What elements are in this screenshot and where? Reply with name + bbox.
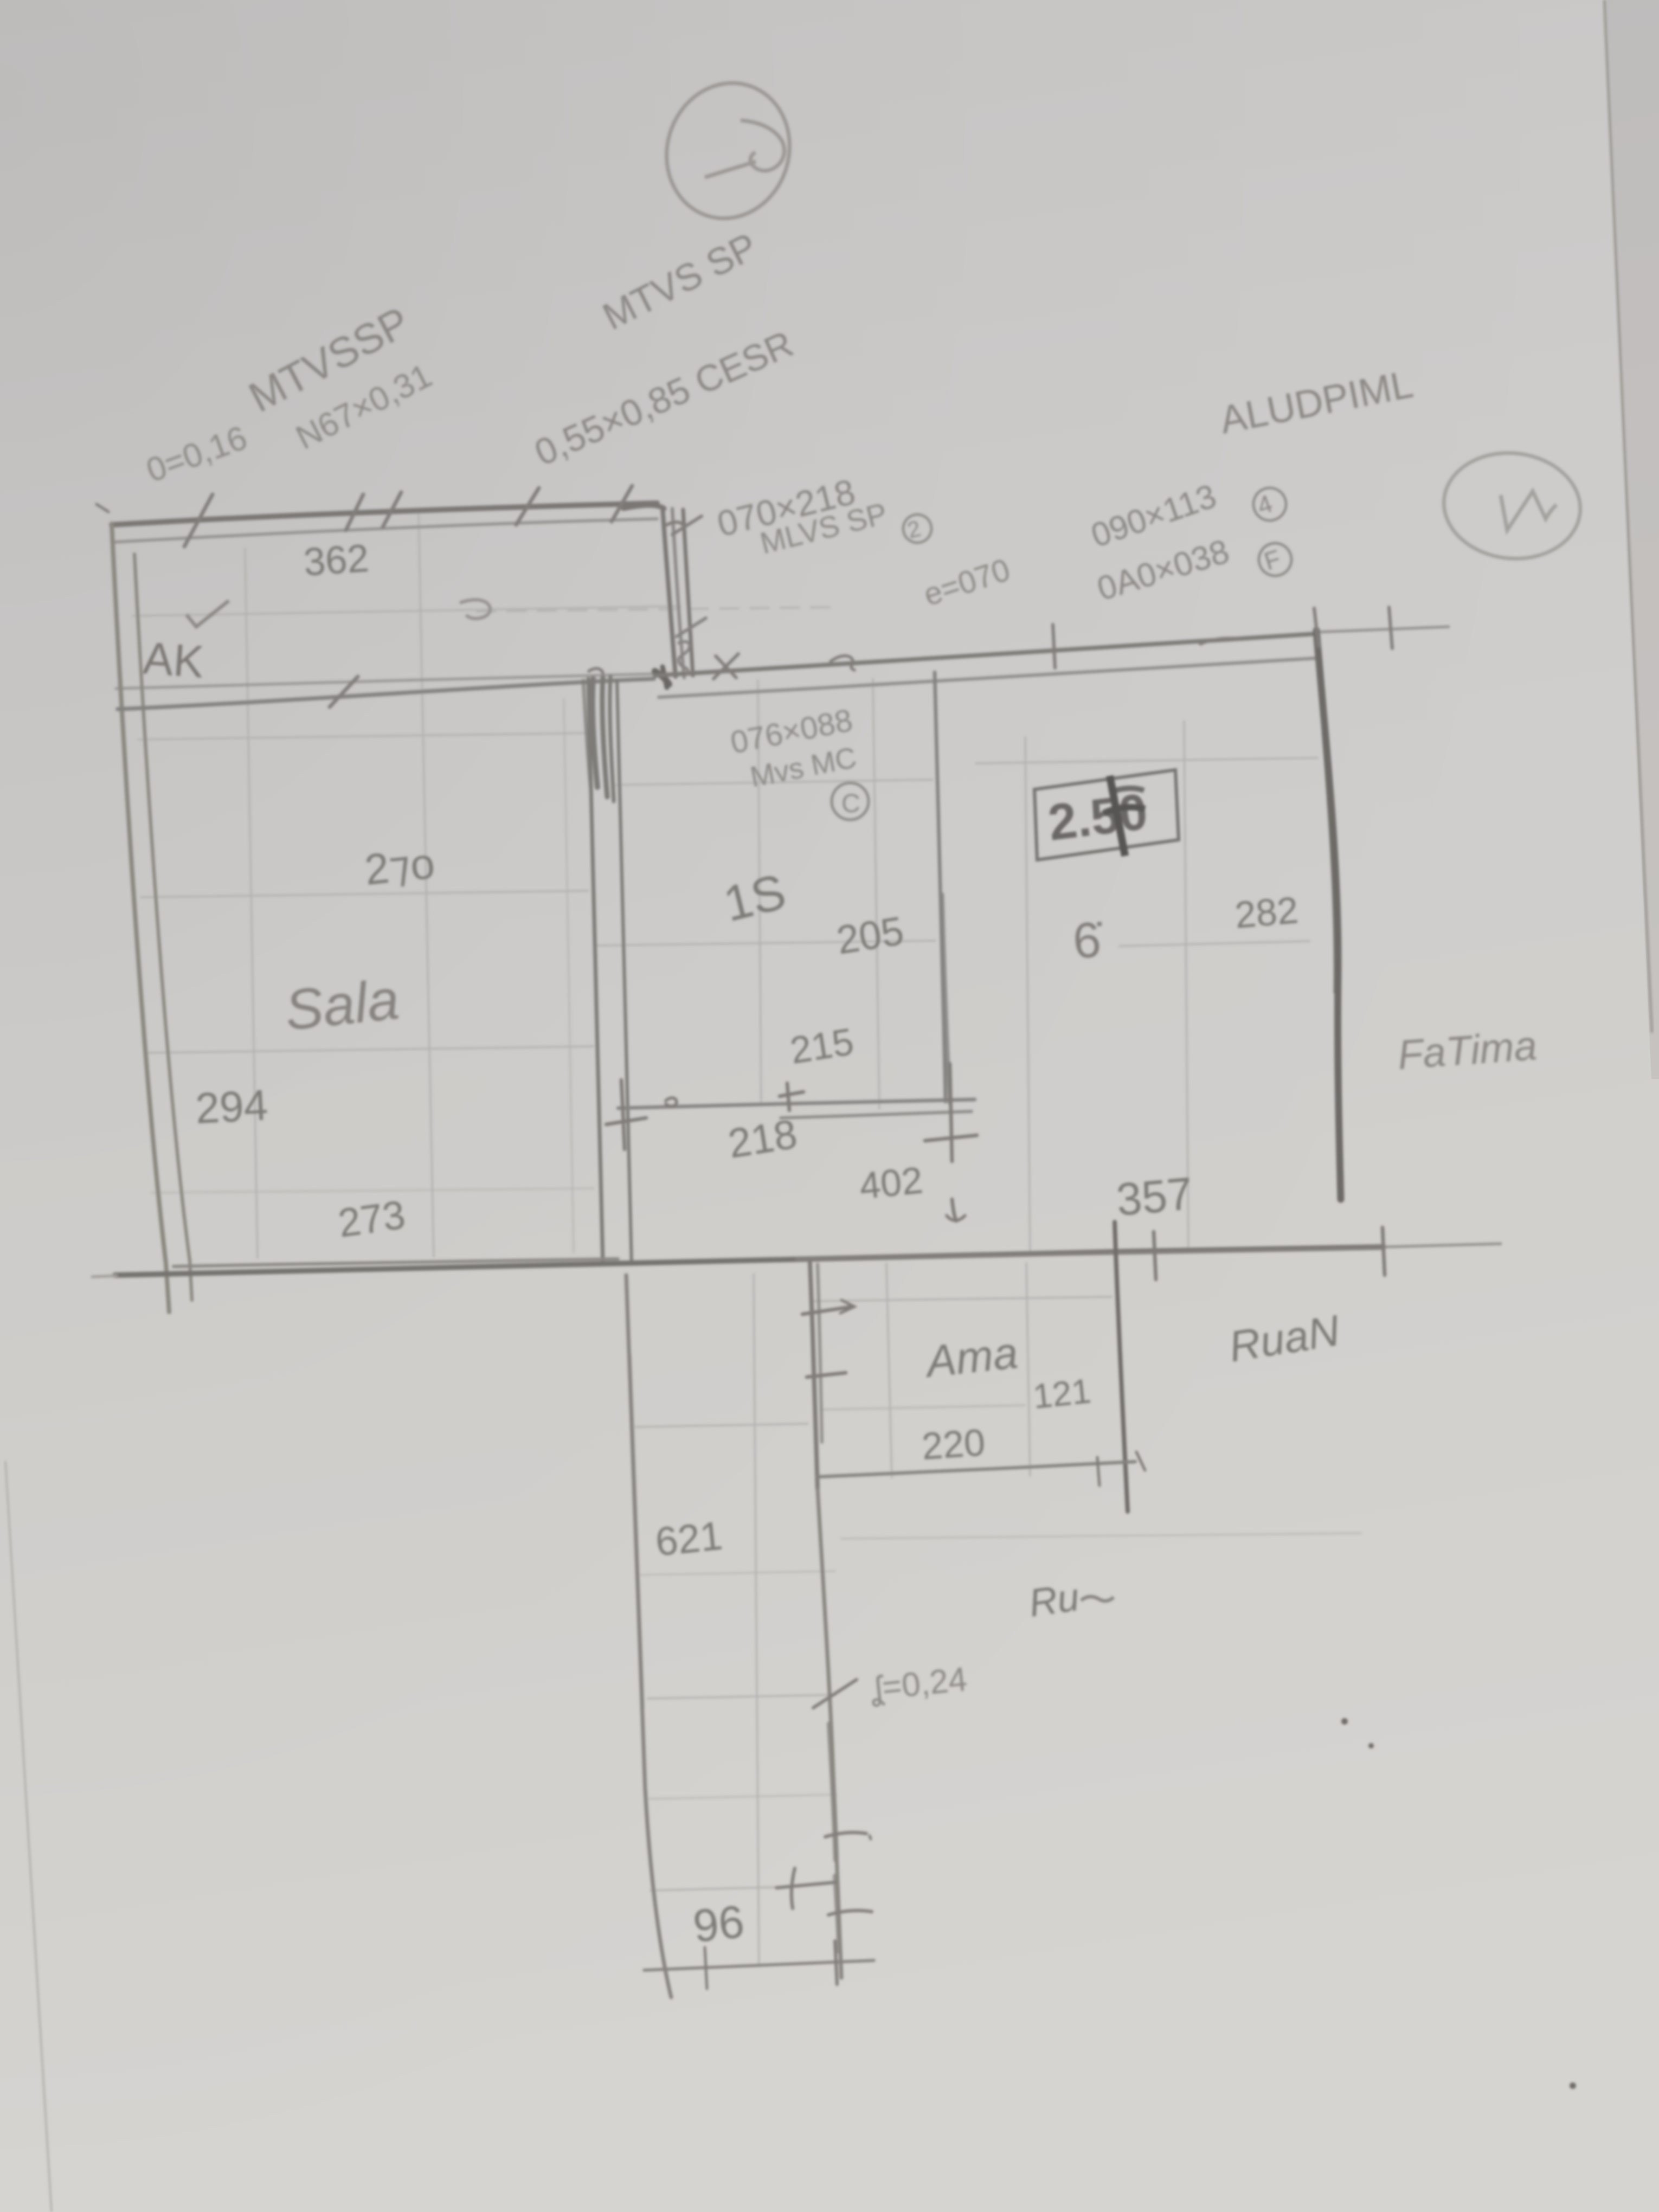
svg-text:Ru: Ru (1026, 1576, 1082, 1625)
svg-text:220: 220 (921, 1421, 987, 1468)
svg-text:362: 362 (303, 537, 370, 584)
svg-text:357: 357 (1114, 1168, 1194, 1225)
svg-text:121: 121 (1031, 1371, 1093, 1416)
svg-text:96: 96 (691, 1896, 747, 1952)
svg-text:C: C (841, 789, 860, 818)
svg-text:273: 273 (336, 1192, 408, 1245)
svg-text:402: 402 (857, 1159, 924, 1207)
svg-text:FaTima: FaTima (1396, 1023, 1538, 1078)
svg-text:621: 621 (653, 1513, 724, 1564)
svg-text:2⁊o: 2⁊o (362, 839, 436, 894)
svg-text:AK: AK (142, 632, 205, 687)
svg-text:Ama: Ama (921, 1328, 1020, 1387)
svg-text:282: 282 (1233, 889, 1300, 936)
svg-text:294: 294 (194, 1081, 269, 1133)
svg-text:2.50: 2.50 (1045, 782, 1150, 851)
svg-text:Sala: Sala (282, 968, 402, 1043)
